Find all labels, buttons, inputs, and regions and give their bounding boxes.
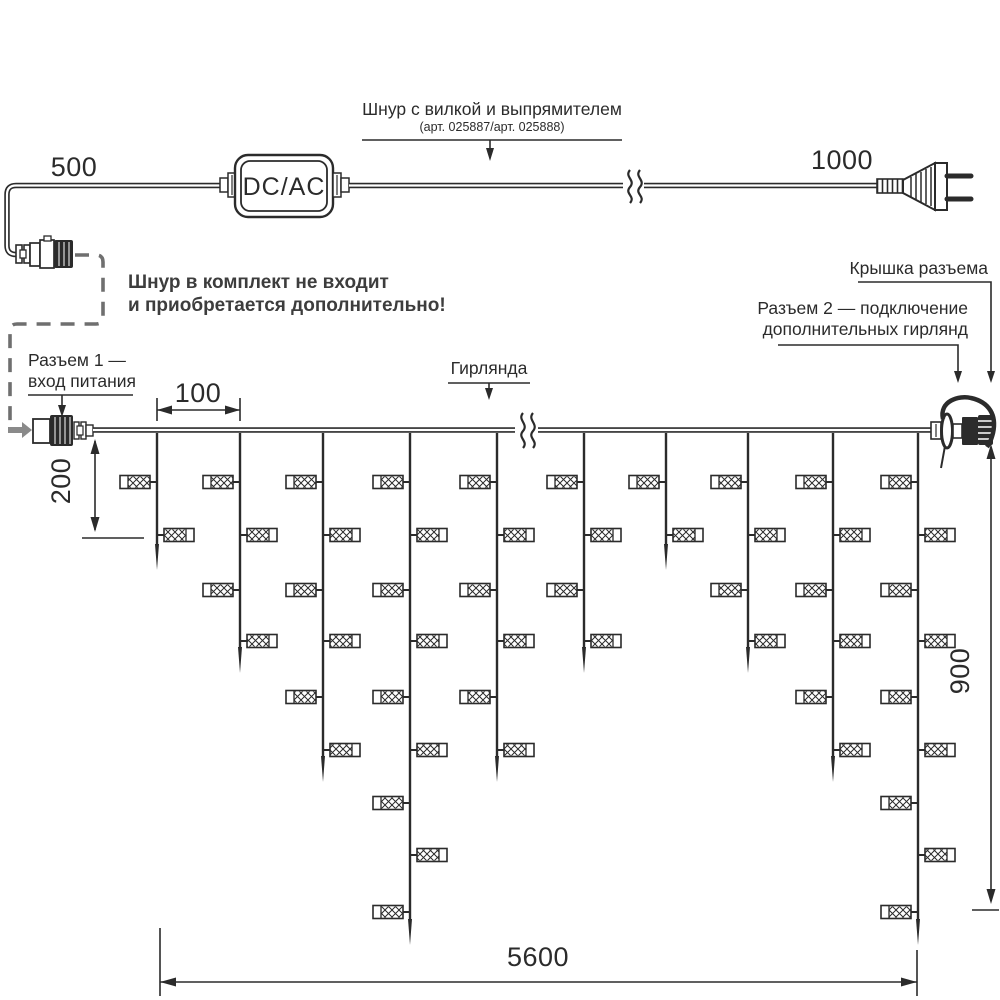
lamp-filament (890, 692, 911, 703)
dim-5600-label: 5600 (507, 942, 569, 972)
cord-connector (16, 236, 73, 268)
drop-tip (831, 756, 835, 782)
power-plug (877, 163, 971, 210)
lamp-filament (841, 530, 862, 541)
lamp-filament (926, 850, 947, 861)
dim-200-label: 200 (46, 458, 76, 505)
lamp-filament (248, 636, 269, 647)
lamp-filament (418, 850, 439, 861)
lamp-filament (926, 636, 947, 647)
cord-break-mark (623, 170, 644, 203)
dim-1000-label: 1000 (811, 145, 873, 175)
dashed-route (8, 255, 103, 438)
connector1-callout: Разъем 1 — вход питания (28, 350, 136, 417)
lamp-filament (638, 477, 659, 488)
drop-tip (238, 647, 242, 673)
lamp-filament (890, 907, 911, 918)
drop-tip (495, 756, 499, 782)
lamp-filament (756, 530, 777, 541)
lamp-filament (841, 745, 862, 756)
lamp-filament (382, 477, 403, 488)
lamp-filament (382, 798, 403, 809)
lamp-filament (505, 530, 526, 541)
lamp-filament (418, 745, 439, 756)
drop-tip (408, 919, 412, 945)
garland-schematic: DC/AC 500 1000 Шнур с вилкой и выпрямите… (0, 0, 1000, 1000)
lamp-filament (592, 530, 613, 541)
gray-arrow (8, 422, 32, 438)
lamp-filament (890, 798, 911, 809)
lamp-filament (295, 477, 316, 488)
cord-callout: Шнур с вилкой и выпрямителем (арт. 02588… (362, 99, 622, 161)
garland-drops (120, 433, 955, 945)
lamp-filament (890, 477, 911, 488)
lamp-filament (556, 477, 577, 488)
drop-tip (664, 544, 668, 570)
lanyard-strap (941, 446, 945, 468)
note-line1: Шнур в комплект не входит (128, 272, 389, 293)
lamp-filament (720, 477, 741, 488)
lamp-filament (165, 530, 186, 541)
lamp-filament (674, 530, 695, 541)
lamp-filament (805, 477, 826, 488)
drop-tip (582, 647, 586, 673)
lamp-filament (129, 477, 150, 488)
lamp-filament (469, 692, 490, 703)
cord-callout-title: Шнур с вилкой и выпрямителем (362, 99, 622, 119)
lamp-filament (248, 530, 269, 541)
cord-right-segment (349, 170, 877, 203)
drop-tip (916, 919, 920, 945)
lamp-filament (469, 585, 490, 596)
lamp-filament (756, 636, 777, 647)
drop-tip (321, 756, 325, 782)
garland-break-mark (515, 413, 538, 448)
lamp-filament (556, 585, 577, 596)
garland-callout: Гирлянда (448, 358, 530, 400)
lamp-filament (331, 530, 352, 541)
lamp-filament (592, 636, 613, 647)
lamp-filament (890, 585, 911, 596)
connector2-callout: Разъем 2 — подключение дополнительных ги… (757, 298, 968, 383)
lamp-filament (212, 585, 233, 596)
lamp-filament (926, 745, 947, 756)
garland-label: Гирлянда (451, 358, 528, 378)
dim-900: 900 (945, 444, 999, 910)
connector2-label-line1: Разъем 2 — подключение (757, 298, 968, 318)
dim-500-label: 500 (51, 152, 98, 182)
lamp-filament (295, 692, 316, 703)
lamp-filament (212, 477, 233, 488)
dim-100: 100 (157, 378, 240, 421)
dcac-label: DC/AC (243, 173, 326, 201)
diagram-page: DC/AC 500 1000 Шнур с вилкой и выпрямите… (0, 0, 1000, 1000)
connector2 (931, 397, 994, 468)
dim-5600: 5600 (160, 928, 917, 996)
lamp-filament (805, 692, 826, 703)
dim-100-label: 100 (175, 378, 222, 408)
note-line2: и приобретается дополнительно! (128, 295, 446, 316)
garland-wire (93, 413, 932, 448)
lamp-filament (418, 530, 439, 541)
connector1 (33, 415, 93, 446)
cover-label: Крышка разъема (849, 258, 988, 278)
dim-900-label: 900 (945, 648, 975, 695)
lamp-filament (926, 530, 947, 541)
lamp-filament (418, 636, 439, 647)
drop-tip (746, 647, 750, 673)
dcac-adapter: DC/AC (220, 155, 349, 217)
lamp-filament (505, 636, 526, 647)
lanyard-loop (942, 414, 953, 448)
drop-tip (155, 544, 159, 570)
lamp-filament (805, 585, 826, 596)
connector2-label-line2: дополнительных гирлянд (763, 319, 968, 339)
lamp-filament (331, 636, 352, 647)
lamp-filament (382, 907, 403, 918)
lamp-filament (295, 585, 316, 596)
lamp-filament (382, 585, 403, 596)
lamp-filament (331, 745, 352, 756)
connector1-label-line2: вход питания (28, 371, 136, 391)
lamp-filament (841, 636, 862, 647)
lamp-filament (469, 477, 490, 488)
connector1-label-line1: Разъем 1 — (28, 350, 126, 370)
lamp-filament (382, 692, 403, 703)
lamp-filament (505, 745, 526, 756)
lamp-filament (720, 585, 741, 596)
cord-callout-sub: (арт. 025887/арт. 025888) (419, 120, 564, 134)
